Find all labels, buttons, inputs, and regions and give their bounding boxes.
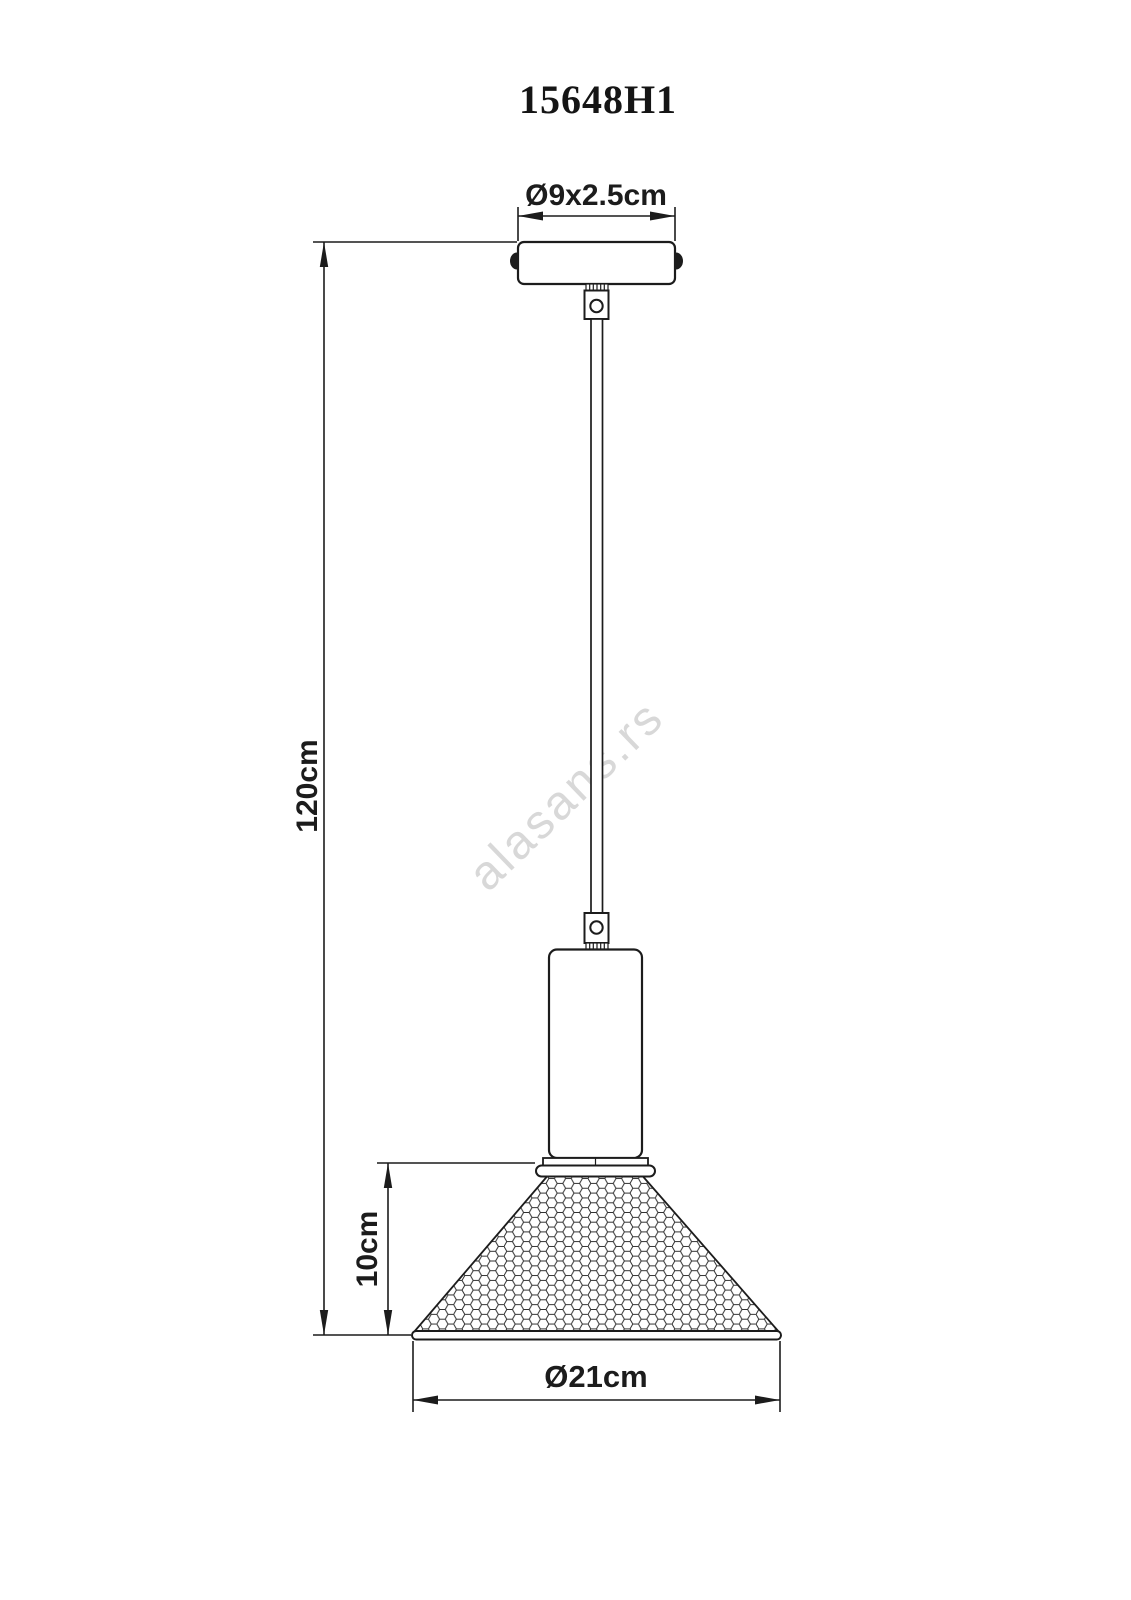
shade-cone <box>414 1177 779 1333</box>
dim-canopy-label: Ø9x2.5cm <box>525 181 667 211</box>
dim-shade-diameter-label: Ø21cm <box>544 1361 647 1392</box>
dim-shade-height-label: 10cm <box>353 1211 383 1288</box>
technical-drawing-page: alasans.rs <box>0 0 1131 1600</box>
dim-diameter-arrow-left <box>413 1396 438 1405</box>
dim-shade-height-arrow-top <box>384 1163 392 1188</box>
dim-canopy <box>518 207 675 241</box>
ceiling-canopy <box>518 242 675 284</box>
dim-canopy-arrow-left <box>518 212 543 221</box>
dim-canopy-arrow-right <box>650 212 675 221</box>
pendant-lamp <box>412 242 781 1340</box>
cord-grip-bottom <box>585 913 609 943</box>
cord-grip-top <box>585 291 609 320</box>
dim-overall-height-label: 120cm <box>293 739 323 832</box>
shade-cone-mesh <box>414 1177 779 1333</box>
shade-rim <box>412 1331 781 1340</box>
suspension-cord <box>591 319 603 913</box>
dim-height-arrow-top <box>320 242 328 267</box>
socket-cylinder <box>549 950 642 1159</box>
dim-diameter-arrow-right <box>755 1396 780 1405</box>
product-code-title: 15648H1 <box>519 80 677 120</box>
dim-shade-height-arrow-bottom <box>384 1310 392 1335</box>
collar-ring <box>536 1166 655 1177</box>
cord-grip-top-hole <box>590 300 602 312</box>
cord-grip-bottom-hole <box>590 921 602 933</box>
dim-overall-height <box>313 242 517 1335</box>
dim-height-arrow-bottom <box>320 1310 328 1335</box>
